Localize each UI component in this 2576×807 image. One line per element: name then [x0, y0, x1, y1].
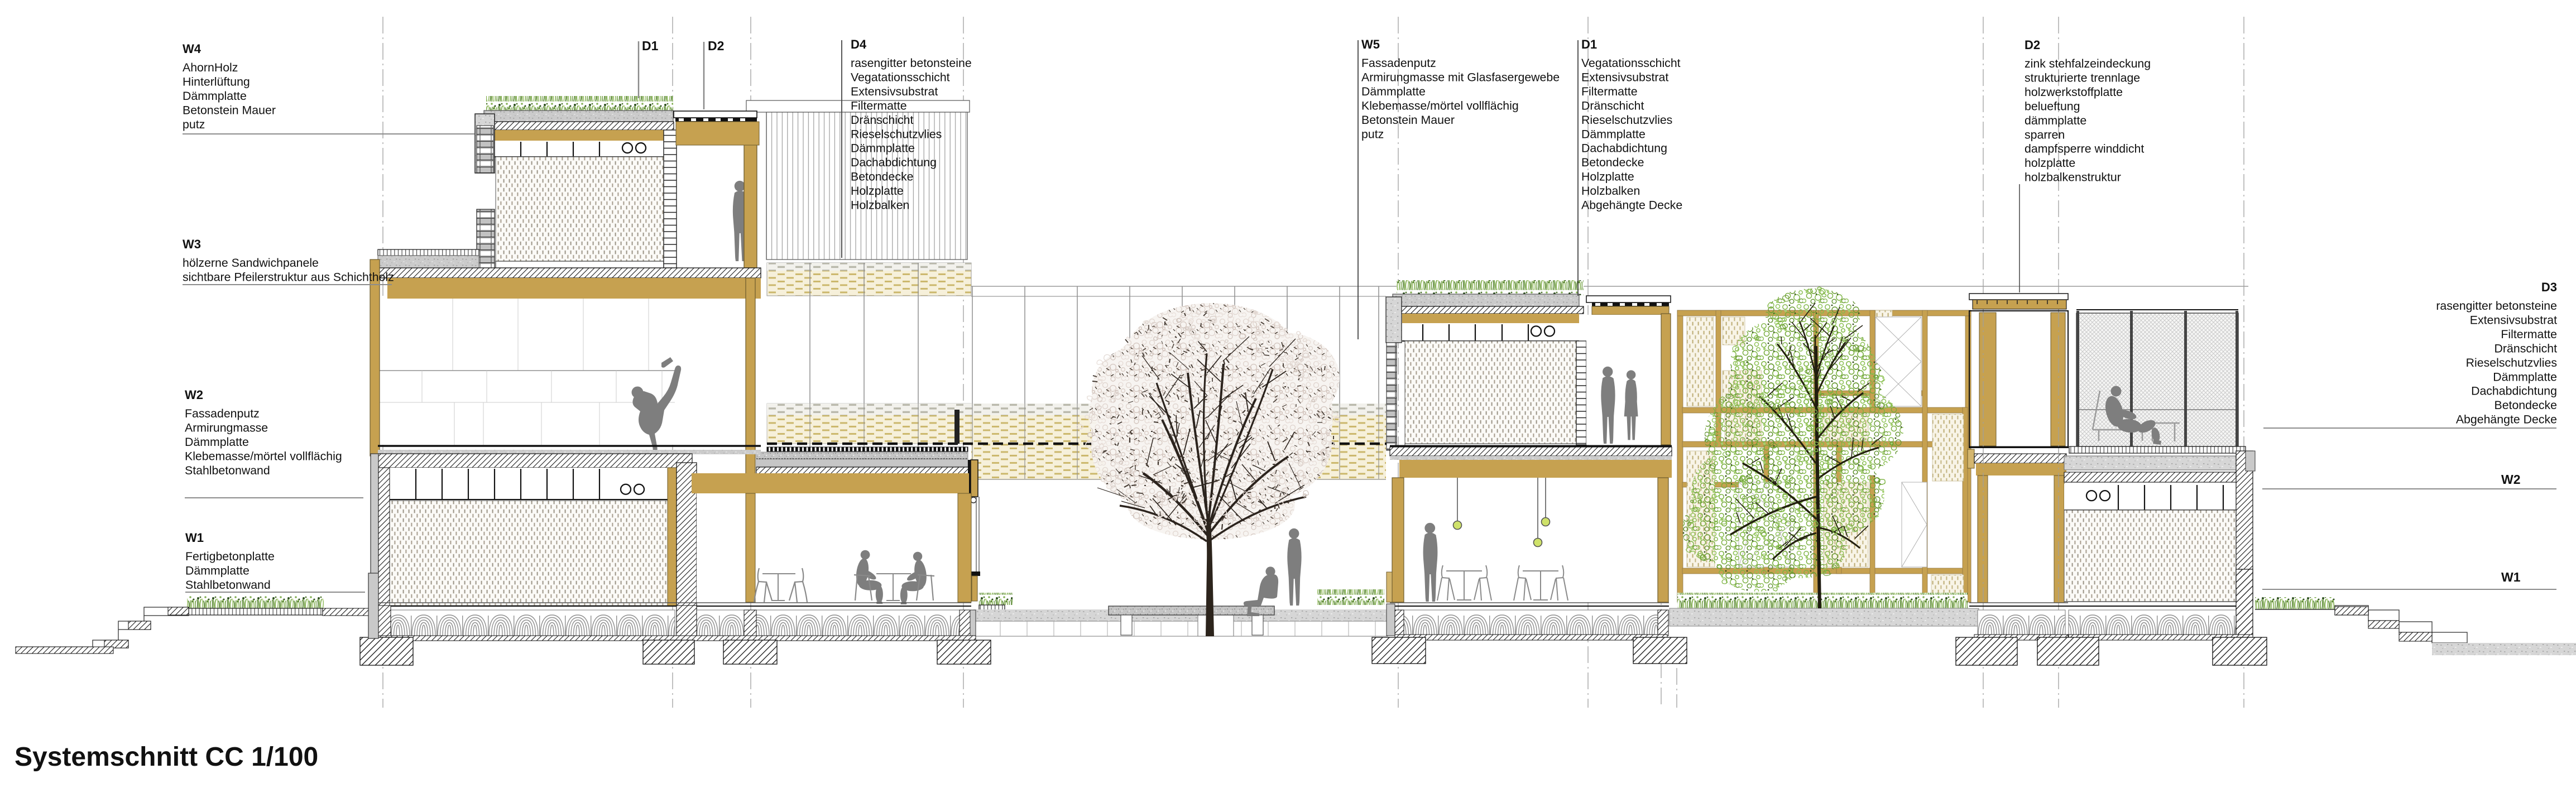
svg-text:Fertigbetonplatte: Fertigbetonplatte — [185, 550, 275, 563]
svg-text:D1: D1 — [642, 39, 659, 53]
svg-text:Klebemasse/mörtel vollflächig: Klebemasse/mörtel vollflächig — [185, 449, 342, 463]
svg-text:hölzerne Sandwichpanele: hölzerne Sandwichpanele — [183, 256, 319, 270]
svg-text:D4: D4 — [851, 37, 867, 51]
svg-text:W2: W2 — [185, 388, 203, 402]
svg-text:W1: W1 — [2501, 570, 2521, 584]
svg-text:holzbalkenstruktur: holzbalkenstruktur — [2025, 171, 2121, 184]
svg-text:putz: putz — [183, 118, 205, 131]
svg-text:Dränschicht: Dränschicht — [2495, 342, 2558, 355]
svg-text:Betondecke: Betondecke — [2495, 398, 2558, 412]
svg-text:Systemschnitt CC 1/100: Systemschnitt CC 1/100 — [15, 742, 318, 772]
svg-text:D3: D3 — [2541, 280, 2557, 294]
svg-text:Vegatationsschicht: Vegatationsschicht — [1581, 56, 1681, 70]
svg-text:Filtermatte: Filtermatte — [851, 99, 907, 112]
svg-text:sichtbare Pfeilerstruktur aus: sichtbare Pfeilerstruktur aus Schichthol… — [183, 270, 394, 284]
svg-text:Klebemasse/mörtel vollflächig: Klebemasse/mörtel vollflächig — [1361, 99, 1519, 112]
svg-text:Holzplatte: Holzplatte — [851, 184, 904, 198]
svg-text:Betondecke: Betondecke — [1581, 156, 1644, 169]
svg-text:rasengitter betonsteine: rasengitter betonsteine — [851, 56, 972, 70]
svg-text:W4: W4 — [183, 42, 202, 56]
svg-text:Rieselschutzvlies: Rieselschutzvlies — [1581, 113, 1672, 127]
svg-text:holzwerkstoffplatte: holzwerkstoffplatte — [2025, 85, 2123, 99]
svg-text:Stahlbetonwand: Stahlbetonwand — [185, 578, 271, 592]
svg-text:Dachabdichtung: Dachabdichtung — [1581, 142, 1667, 155]
svg-text:Holzbalken: Holzbalken — [1581, 184, 1640, 198]
svg-text:dämmplatte: dämmplatte — [2025, 114, 2086, 127]
svg-text:Dämmplatte: Dämmplatte — [2493, 370, 2557, 383]
svg-text:Extensivsubstrat: Extensivsubstrat — [851, 85, 938, 98]
svg-text:Holzplatte: Holzplatte — [1581, 170, 1634, 184]
svg-text:Extensivsubstrat: Extensivsubstrat — [1581, 70, 1668, 84]
svg-text:Dämmplatte: Dämmplatte — [851, 142, 915, 155]
svg-text:zink stehfalzeindeckung: zink stehfalzeindeckung — [2025, 57, 2151, 70]
svg-text:Dränschicht: Dränschicht — [851, 113, 914, 127]
svg-text:Extensivsubstrat: Extensivsubstrat — [2470, 313, 2557, 326]
svg-text:Armirungmasse: Armirungmasse — [185, 421, 268, 434]
svg-text:W3: W3 — [183, 237, 201, 251]
svg-text:Filtermatte: Filtermatte — [1581, 85, 1638, 98]
svg-text:Betondecke: Betondecke — [851, 170, 914, 184]
svg-text:Rieselschutzvlies: Rieselschutzvlies — [2466, 356, 2557, 369]
svg-text:Abgehängte Decke: Abgehängte Decke — [1581, 199, 1682, 212]
svg-text:Filtermatte: Filtermatte — [2501, 328, 2557, 341]
svg-text:Armirungmasse mit Glasfasergew: Armirungmasse mit Glasfasergewebe — [1361, 70, 1560, 84]
svg-text:AhornHolz: AhornHolz — [183, 61, 238, 74]
svg-text:W2: W2 — [2501, 472, 2521, 487]
svg-text:Dämmplatte: Dämmplatte — [1581, 127, 1646, 141]
svg-text:Betonstein Mauer: Betonstein Mauer — [1361, 113, 1455, 127]
svg-text:sparren: sparren — [2025, 128, 2065, 141]
svg-text:holzplatte: holzplatte — [2025, 156, 2075, 170]
svg-text:Fassadenputz: Fassadenputz — [1361, 56, 1436, 70]
svg-text:rasengitter betonsteine: rasengitter betonsteine — [2436, 299, 2557, 313]
svg-text:D2: D2 — [2025, 38, 2040, 52]
svg-text:Dämmplatte: Dämmplatte — [1361, 85, 1426, 98]
svg-text:D2: D2 — [708, 39, 724, 53]
svg-text:Abgehängte Decke: Abgehängte Decke — [2456, 413, 2557, 426]
svg-text:W5: W5 — [1361, 37, 1380, 51]
svg-text:putz: putz — [1361, 127, 1384, 141]
svg-text:strukturierte trennlage: strukturierte trennlage — [2025, 71, 2140, 84]
svg-text:Betonstein Mauer: Betonstein Mauer — [183, 103, 276, 117]
svg-text:Dachabdichtung: Dachabdichtung — [851, 156, 937, 169]
svg-text:Fassadenputz: Fassadenputz — [185, 407, 260, 420]
svg-text:Dachabdichtung: Dachabdichtung — [2471, 385, 2557, 398]
svg-text:D1: D1 — [1581, 37, 1597, 51]
svg-text:Dämmplatte: Dämmplatte — [185, 435, 249, 449]
svg-text:Dämmplatte: Dämmplatte — [185, 564, 250, 577]
svg-text:Holzbalken: Holzbalken — [851, 199, 909, 212]
svg-text:Vegatationsschicht: Vegatationsschicht — [851, 70, 950, 84]
svg-text:Stahlbetonwand: Stahlbetonwand — [185, 464, 270, 477]
svg-text:Rieselschutzvlies: Rieselschutzvlies — [851, 127, 942, 141]
svg-text:Hinterlüftung: Hinterlüftung — [183, 75, 250, 88]
svg-text:dampfsperre winddicht: dampfsperre winddicht — [2025, 142, 2144, 156]
svg-text:Dämmplatte: Dämmplatte — [183, 89, 247, 103]
svg-text:W1: W1 — [185, 531, 204, 545]
svg-text:belueftung: belueftung — [2025, 99, 2080, 113]
svg-text:Dränschicht: Dränschicht — [1581, 99, 1644, 112]
